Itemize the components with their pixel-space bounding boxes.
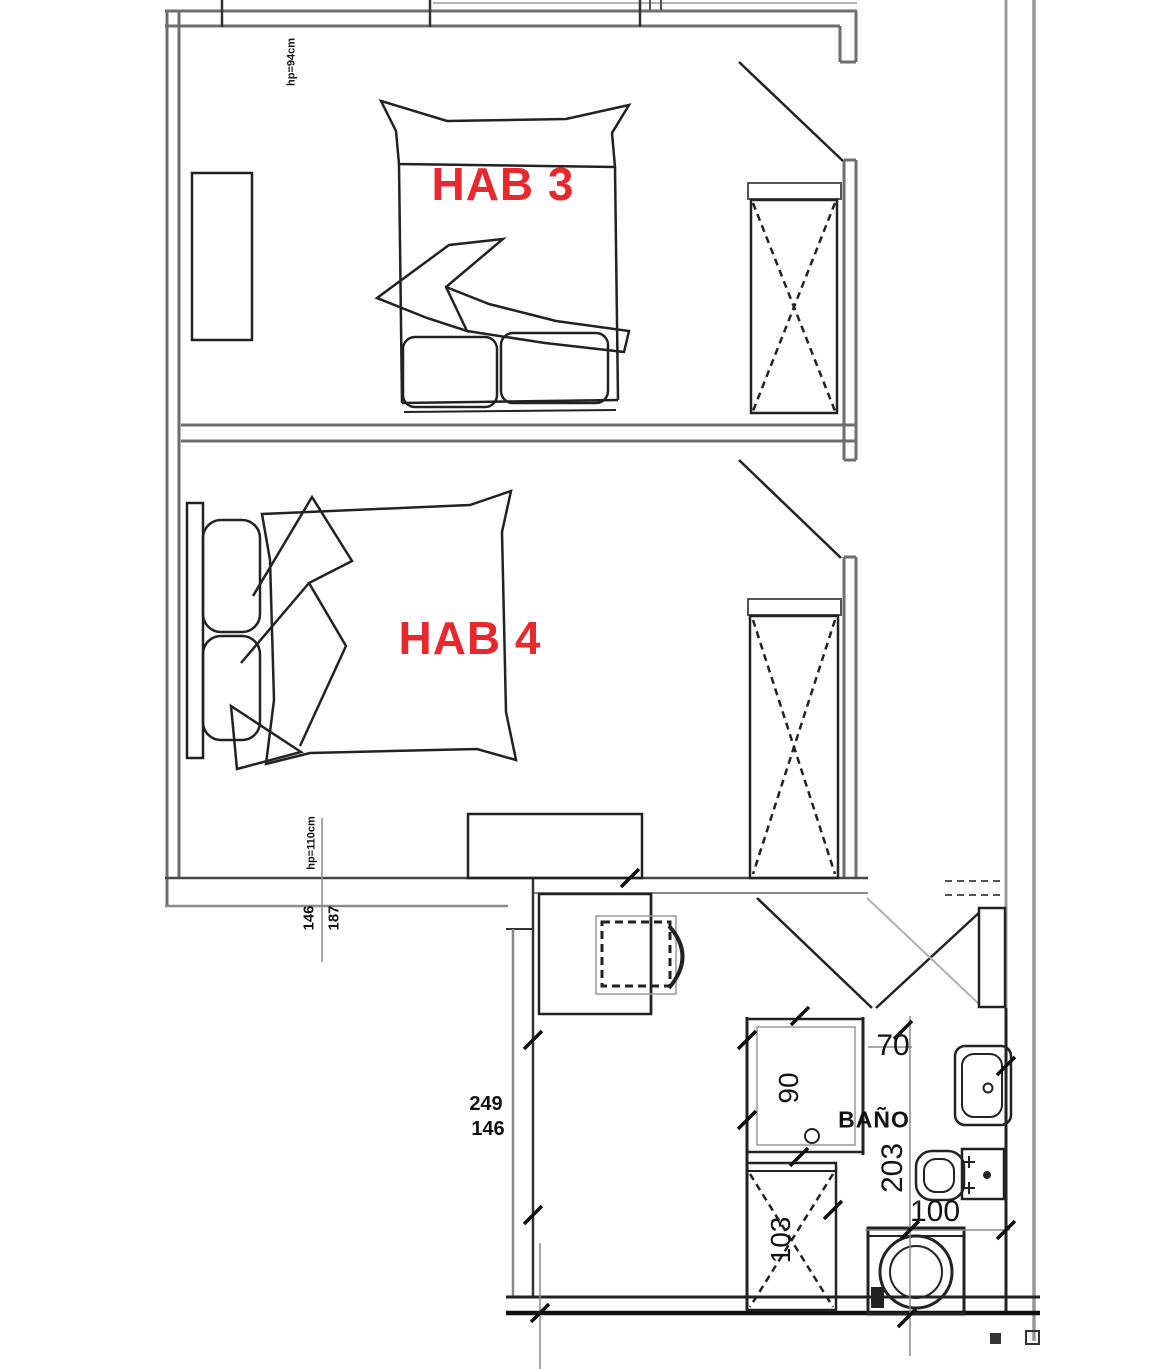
room-label-hab4: HAB 4 [398,615,541,661]
floor-plan-drawing [0,0,1150,1369]
closet-hab3 [748,183,841,413]
floor-plan: HAB 3 HAB 4 BAÑO 70 90 203 100 103 249 1… [0,0,1150,1369]
dimension-closet-width: 103 [767,1217,795,1264]
hab4-pillow-top [203,520,260,632]
walls [165,0,1034,1341]
desk-chair [596,916,683,994]
hab4-duvet-fold [253,497,352,746]
hab3-bed [377,101,629,412]
door-hab3 [739,62,843,161]
closet-hab4 [748,599,841,878]
dimension-wall-b: 187 [327,905,342,930]
doors [739,62,1005,1008]
dimension-study-a: 249 [469,1094,502,1114]
dimension-wall-a: 146 [302,905,317,930]
hab3-duvet-fold [377,239,503,331]
sink [955,1046,1011,1125]
hab3-pillow-left [403,337,497,407]
room-label-bano: BAÑO [838,1109,910,1132]
room-label-hab3: HAB 3 [431,161,574,207]
hab4-headboard [187,503,203,758]
door-hall [876,910,982,1008]
door-bath [757,898,872,1008]
toilet [916,1149,1004,1200]
desk [539,894,651,1014]
sink-drain [984,1084,993,1093]
window-note-hab4: hp=110cm [307,816,318,870]
dimension-washer-width: 100 [910,1197,960,1227]
closets [747,183,841,1310]
door-hall-panel [979,908,1005,1007]
dimension-bath-length: 203 [878,1143,908,1193]
washing-machine [868,1228,964,1314]
bathroom-walls [506,1008,1040,1344]
shower-drain [805,1129,819,1143]
window-note-hab3: hp=94cm [287,38,298,86]
dimension-lines [322,818,1010,1369]
dimension-study-b: 146 [471,1119,504,1139]
door-hab4 [739,460,841,558]
dimension-bath-width: 70 [876,1031,909,1061]
door-swing-guide [867,898,979,1004]
hab4-dresser [468,814,642,878]
dimension-shower-width: 90 [775,1072,803,1103]
hab3-side-table [192,173,252,340]
